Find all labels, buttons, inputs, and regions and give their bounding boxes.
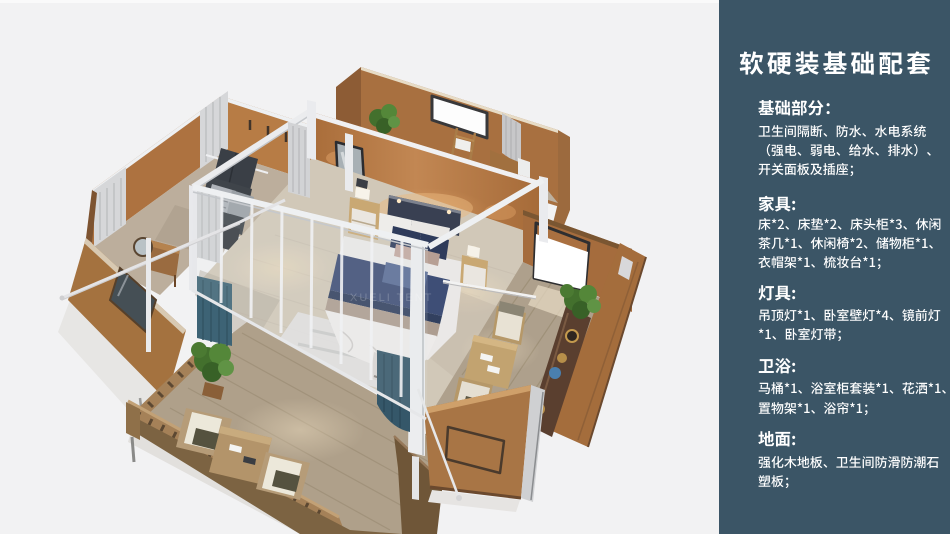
svg-text:XUELI TENT: XUELI TENT — [350, 292, 433, 304]
